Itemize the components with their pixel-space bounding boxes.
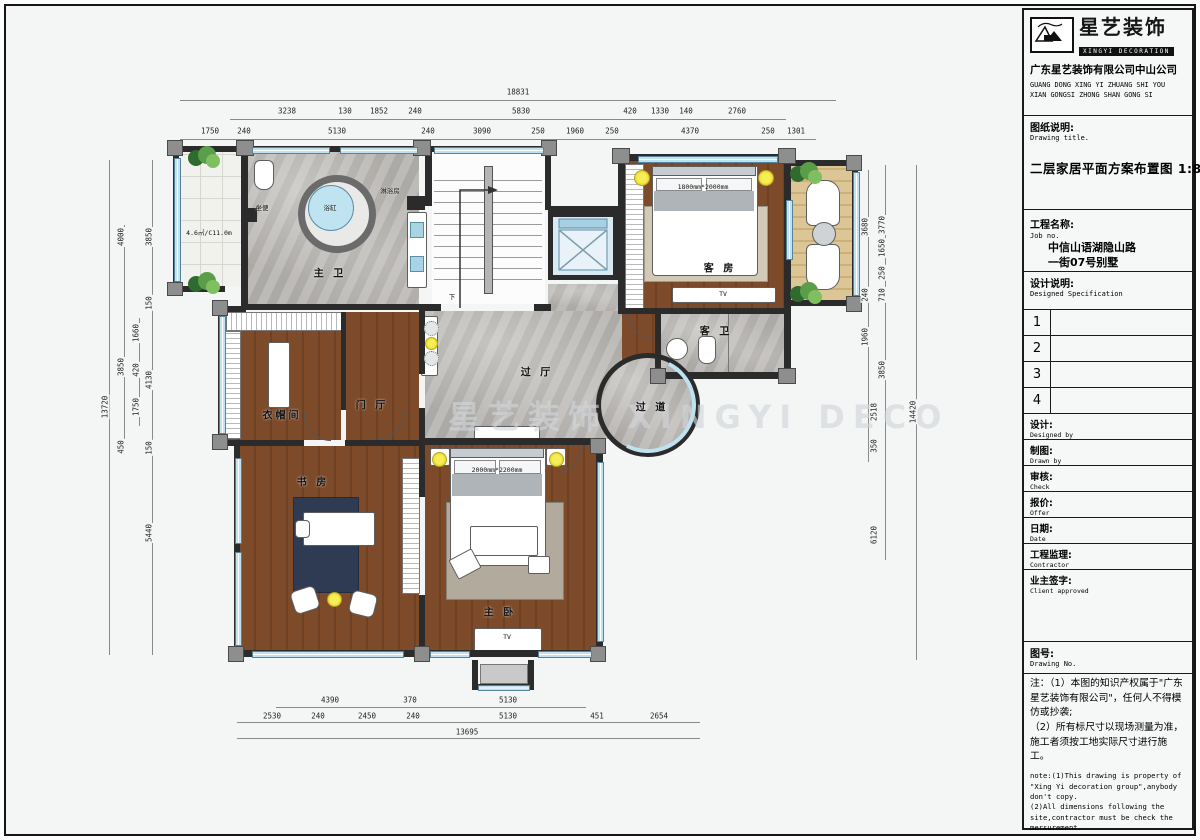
wall: [241, 304, 425, 310]
balcony-door: [786, 200, 793, 260]
revision-row: 2: [1024, 336, 1192, 362]
toilet: [698, 336, 716, 364]
spec-section: 设计说明: Designed Specification: [1024, 272, 1192, 310]
wall: [419, 408, 425, 440]
dimension-label: 14420: [909, 400, 918, 425]
dimension-label: 150: [145, 295, 154, 311]
dimension-line: [180, 100, 836, 101]
dimension-label: 1660: [132, 323, 141, 343]
room-label: 客 卫: [700, 323, 732, 338]
column: [167, 282, 183, 296]
field-label-cn: 审核:: [1030, 469, 1186, 483]
wardrobe: [226, 312, 342, 331]
wall: [622, 308, 787, 314]
room-label: 主 卧: [484, 604, 516, 619]
dimension-line: [276, 707, 586, 708]
dimension-label: 1650: [878, 238, 887, 258]
dimension-line: [124, 225, 125, 455]
dimension-label: 4370: [680, 127, 700, 136]
dimension-label: 1750: [132, 397, 141, 417]
dimension-label: 1750: [200, 127, 220, 136]
annotation-label: TV: [719, 290, 727, 298]
project-address: 中信山语湖隐山路 一街07号别墅: [1048, 241, 1186, 271]
annotation-label: TV: [503, 633, 511, 641]
window: [252, 147, 330, 154]
company-name-pinyin: GUANG DONG XING YI ZHUANG SHI YOU XIAN G…: [1030, 80, 1186, 100]
field-label-cn: 业主签字:: [1030, 573, 1186, 587]
wall: [618, 154, 625, 314]
room-label: 门 厅: [356, 397, 388, 412]
decor-light: [425, 337, 438, 350]
company-name: 广东星艺装饰有限公司中山公司: [1030, 62, 1186, 77]
plant: [188, 272, 222, 298]
field-label-cn: 日期:: [1030, 521, 1186, 535]
dimension-label: 140: [678, 107, 694, 116]
window: [538, 651, 592, 658]
column: [414, 646, 430, 662]
project-address-line1: 中信山语湖隐山路: [1048, 241, 1136, 254]
dimension-label: 150: [145, 440, 154, 456]
floor-plan: 星艺装饰 XINGYI DECO 主 卫衣帽间门 厅过 厅过 道书 房主 卧客 …: [0, 0, 1020, 840]
window: [219, 316, 226, 434]
room-label: 客 房: [704, 260, 736, 275]
dimension-label: 2760: [727, 107, 747, 116]
field-client-signature[interactable]: 业主签字: Client approved: [1024, 570, 1192, 642]
revision-number: 4: [1024, 388, 1051, 413]
window: [235, 458, 242, 544]
dimension-label: 2518: [870, 402, 879, 422]
dimension-label: 240: [236, 127, 252, 136]
title-block-logo-section: 星艺装饰 XINGYI DECORATION 广东星艺装饰有限公司中山公司 GU…: [1024, 10, 1192, 116]
dimension-label: 5440: [145, 523, 154, 543]
job-section: 工程名称: Job no. 中信山语湖隐山路 一街07号别墅: [1024, 210, 1192, 272]
window: [434, 147, 544, 154]
field-label-en: Offer: [1030, 509, 1186, 517]
revision-number: 3: [1024, 362, 1051, 387]
dimension-label: 3850: [117, 357, 126, 377]
revision-row: 4: [1024, 388, 1192, 414]
dimension-label: 5130: [498, 712, 518, 721]
wall: [548, 206, 624, 212]
window: [174, 158, 181, 282]
bed-headboard: [652, 166, 756, 176]
room-label: 过 厅: [521, 364, 553, 379]
annotation-label: 1800mm*2000mm: [678, 183, 729, 191]
dimension-label: 240: [407, 107, 423, 116]
side-table: [327, 592, 342, 607]
revision-blank-cell: [1051, 388, 1192, 413]
field-label-cn: 报价:: [1030, 495, 1186, 509]
room-label: 衣帽间: [263, 407, 302, 422]
dimension-label: 1960: [861, 327, 870, 347]
dimension-label: 420: [622, 107, 638, 116]
drawing-title-label-en: Drawing title.: [1030, 134, 1186, 142]
brand-name: 星艺装饰: [1079, 17, 1174, 38]
note-english: note:(1)This drawing is property of "Xin…: [1030, 771, 1186, 834]
field-check: 审核: Check: [1024, 466, 1192, 492]
note-chinese: 注：（1）本图的知识产权属于"广东星艺装饰有限公司"，任何人不得模仿或抄袭; （…: [1030, 677, 1186, 765]
annotation-label: 坐便: [256, 202, 269, 212]
brand-name-en: XINGYI DECORATION: [1079, 47, 1174, 56]
decor-cushion: [424, 351, 439, 366]
desk-chair: [295, 520, 310, 538]
project-address-line2: 一街07号别墅: [1048, 256, 1118, 269]
field-contractor: 工程监理: Contractor: [1024, 544, 1192, 570]
field-offer: 报价: Offer: [1024, 492, 1192, 518]
notes-section: 注：（1）本图的知识产权属于"广东星艺装饰有限公司"，任何人不得模仿或抄袭; （…: [1024, 674, 1192, 837]
dimension-label: 710: [878, 287, 887, 303]
ottoman: [528, 556, 550, 574]
drawing-no-section: 图号: Drawing No.: [1024, 642, 1192, 674]
dimension-label: 250: [878, 265, 887, 281]
dimension-label: 18831: [506, 88, 531, 97]
wall: [419, 445, 425, 497]
dimension-label: 3238: [277, 107, 297, 116]
wall: [534, 304, 551, 311]
dimension-label: 1330: [650, 107, 670, 116]
dimension-label: 451: [589, 712, 605, 721]
window: [853, 172, 860, 296]
wall: [241, 146, 248, 310]
field-label-en: Date: [1030, 535, 1186, 543]
dimension-label: 6120: [870, 525, 879, 545]
dimension-label: 420: [132, 362, 141, 378]
window: [252, 651, 404, 658]
dimension-line: [237, 738, 700, 739]
window: [430, 651, 470, 658]
wall: [425, 304, 441, 311]
column: [212, 300, 228, 316]
balcony-left-floor: [179, 152, 241, 286]
revision-number: 1: [1024, 310, 1051, 335]
column: [612, 148, 630, 164]
bedside-light: [634, 170, 650, 186]
field-label-cn: 制图:: [1030, 443, 1186, 457]
staircase: [432, 152, 545, 304]
company-pinyin-line1: GUANG DONG XING YI ZHUANG SHI YOU: [1030, 81, 1165, 89]
drawing-no-label: 图号:: [1030, 645, 1186, 660]
round-table: [812, 222, 836, 246]
revision-rows: 1234: [1024, 310, 1192, 414]
drawing-title: 二层家居平面方案布置图 1:85: [1030, 158, 1186, 177]
dimension-label: 2654: [649, 712, 669, 721]
room-label: 主 卫: [314, 265, 346, 280]
field-label-en: Contractor: [1030, 561, 1186, 569]
bay-front-window: [478, 685, 530, 691]
wall: [345, 440, 425, 446]
dimension-label: 5130: [498, 696, 518, 705]
dimension-label: 13720: [101, 395, 110, 420]
study-desk: [303, 512, 375, 546]
dimension-label: 2530: [262, 712, 282, 721]
dimension-label: 5130: [327, 127, 347, 136]
window: [340, 147, 418, 154]
dimension-label: 4130: [145, 370, 154, 390]
field-label-en: Designed by: [1030, 431, 1186, 439]
dimension-label: 3850: [878, 360, 887, 380]
bedside-light: [758, 170, 774, 186]
window: [235, 552, 242, 646]
sink: [410, 256, 424, 272]
dimension-label: 250: [604, 127, 620, 136]
bookshelf: [402, 458, 420, 594]
drawing-title-section: 图纸说明: Drawing title. 二层家居平面方案布置图 1:85: [1024, 116, 1192, 210]
plant: [790, 162, 824, 188]
revision-row: 3: [1024, 362, 1192, 388]
dimension-label: 3680: [861, 217, 870, 237]
field-drawn: 制图: Drawn by: [1024, 440, 1192, 466]
column: [590, 646, 606, 662]
spec-label-en: Designed Specification: [1030, 290, 1186, 298]
column: [778, 368, 796, 384]
revision-number: 2: [1024, 336, 1051, 361]
revision-blank-cell: [1051, 362, 1192, 387]
dimension-label: 4000: [117, 227, 126, 247]
wall: [407, 196, 425, 210]
wall: [419, 310, 425, 374]
window: [638, 156, 778, 163]
field-label-en: Client approved: [1030, 587, 1186, 595]
revision-blank-cell: [1051, 310, 1192, 335]
annotation-label: 淋浴房: [380, 185, 400, 195]
annotation-label: 浴缸: [324, 202, 337, 212]
field-label-en: Drawn by: [1030, 457, 1186, 465]
dimension-label: 3770: [878, 215, 887, 235]
dimension-label: 240: [861, 287, 870, 303]
field-label-en: Check: [1030, 483, 1186, 491]
company-pinyin-line2: XIAN GONGSI ZHONG SHAN GONG SI: [1030, 91, 1153, 99]
bay-window-sill: [480, 664, 528, 684]
column: [590, 438, 606, 454]
dimension-label: 13695: [455, 728, 480, 737]
bed-blanket: [452, 474, 542, 496]
plant: [188, 146, 222, 172]
dimension-label: 130: [337, 107, 353, 116]
drawing-no-label-en: Drawing No.: [1030, 660, 1186, 668]
column: [212, 434, 228, 450]
toilet: [254, 160, 274, 190]
dimension-line: [180, 139, 816, 140]
column: [167, 140, 183, 156]
bed-headboard: [450, 448, 544, 458]
bedside-light: [432, 452, 447, 467]
annotation-label: 4.6㎡/C11.0m: [186, 227, 232, 237]
column: [228, 646, 244, 662]
dimension-label: 1301: [786, 127, 806, 136]
job-label-en: Job no.: [1030, 232, 1186, 240]
dimension-label: 250: [530, 127, 546, 136]
dimension-label: 4390: [320, 696, 340, 705]
dimension-label: 1852: [369, 107, 389, 116]
room-label: 书 房: [297, 474, 329, 489]
dimension-label: 240: [310, 712, 326, 721]
dimension-label: 250: [760, 127, 776, 136]
elevator: [548, 212, 618, 280]
revision-row: 1: [1024, 310, 1192, 336]
bed-blanket: [654, 191, 754, 211]
dimension-label: 450: [117, 439, 126, 455]
decor-cushion: [424, 321, 439, 336]
sofa: [470, 526, 538, 556]
column: [846, 155, 862, 171]
drawing-sheet: 星艺装饰 XINGYI DECO 主 卫衣帽间门 厅过 厅过 道书 房主 卧客 …: [0, 0, 1200, 840]
room-label: 过 道: [636, 399, 668, 414]
field-label-cn: 设计:: [1030, 417, 1186, 431]
dimension-label: 2450: [357, 712, 377, 721]
dimension-label: 240: [420, 127, 436, 136]
dimension-line: [237, 722, 700, 723]
plant: [790, 282, 824, 308]
sink: [410, 222, 424, 238]
sink: [666, 338, 688, 360]
annotation-label: 下: [449, 291, 456, 301]
dimension-label: 370: [402, 696, 418, 705]
wardrobe-island: [268, 342, 290, 408]
xingyi-logo-icon: [1030, 17, 1074, 53]
wall: [422, 438, 604, 445]
wall: [218, 440, 304, 446]
dimension-label: 3850: [145, 227, 154, 247]
dimension-label: 5830: [511, 107, 531, 116]
wardrobe: [224, 331, 241, 439]
dimension-label: 3090: [472, 127, 492, 136]
field-label-cn: 工程监理:: [1030, 547, 1186, 561]
dimension-label: 1960: [565, 127, 585, 136]
title-block: 星艺装饰 XINGYI DECORATION 广东星艺装饰有限公司中山公司 GU…: [1022, 8, 1194, 830]
dimension-label: 350: [870, 438, 879, 454]
field-design: 设计: Designed by: [1024, 414, 1192, 440]
field-date: 日期: Date: [1024, 518, 1192, 544]
window: [597, 462, 604, 642]
annotation-label: 2000mm*2200mm: [472, 466, 523, 474]
drawing-title-label: 图纸说明:: [1030, 119, 1186, 134]
dimension-line: [230, 119, 786, 120]
job-label: 工程名称:: [1030, 216, 1074, 231]
wall: [341, 312, 346, 410]
bedside-light: [549, 452, 564, 467]
spec-label: 设计说明:: [1030, 275, 1186, 290]
elevator-cross-icon: [553, 217, 613, 275]
revision-blank-cell: [1051, 336, 1192, 361]
dimension-label: 240: [405, 712, 421, 721]
